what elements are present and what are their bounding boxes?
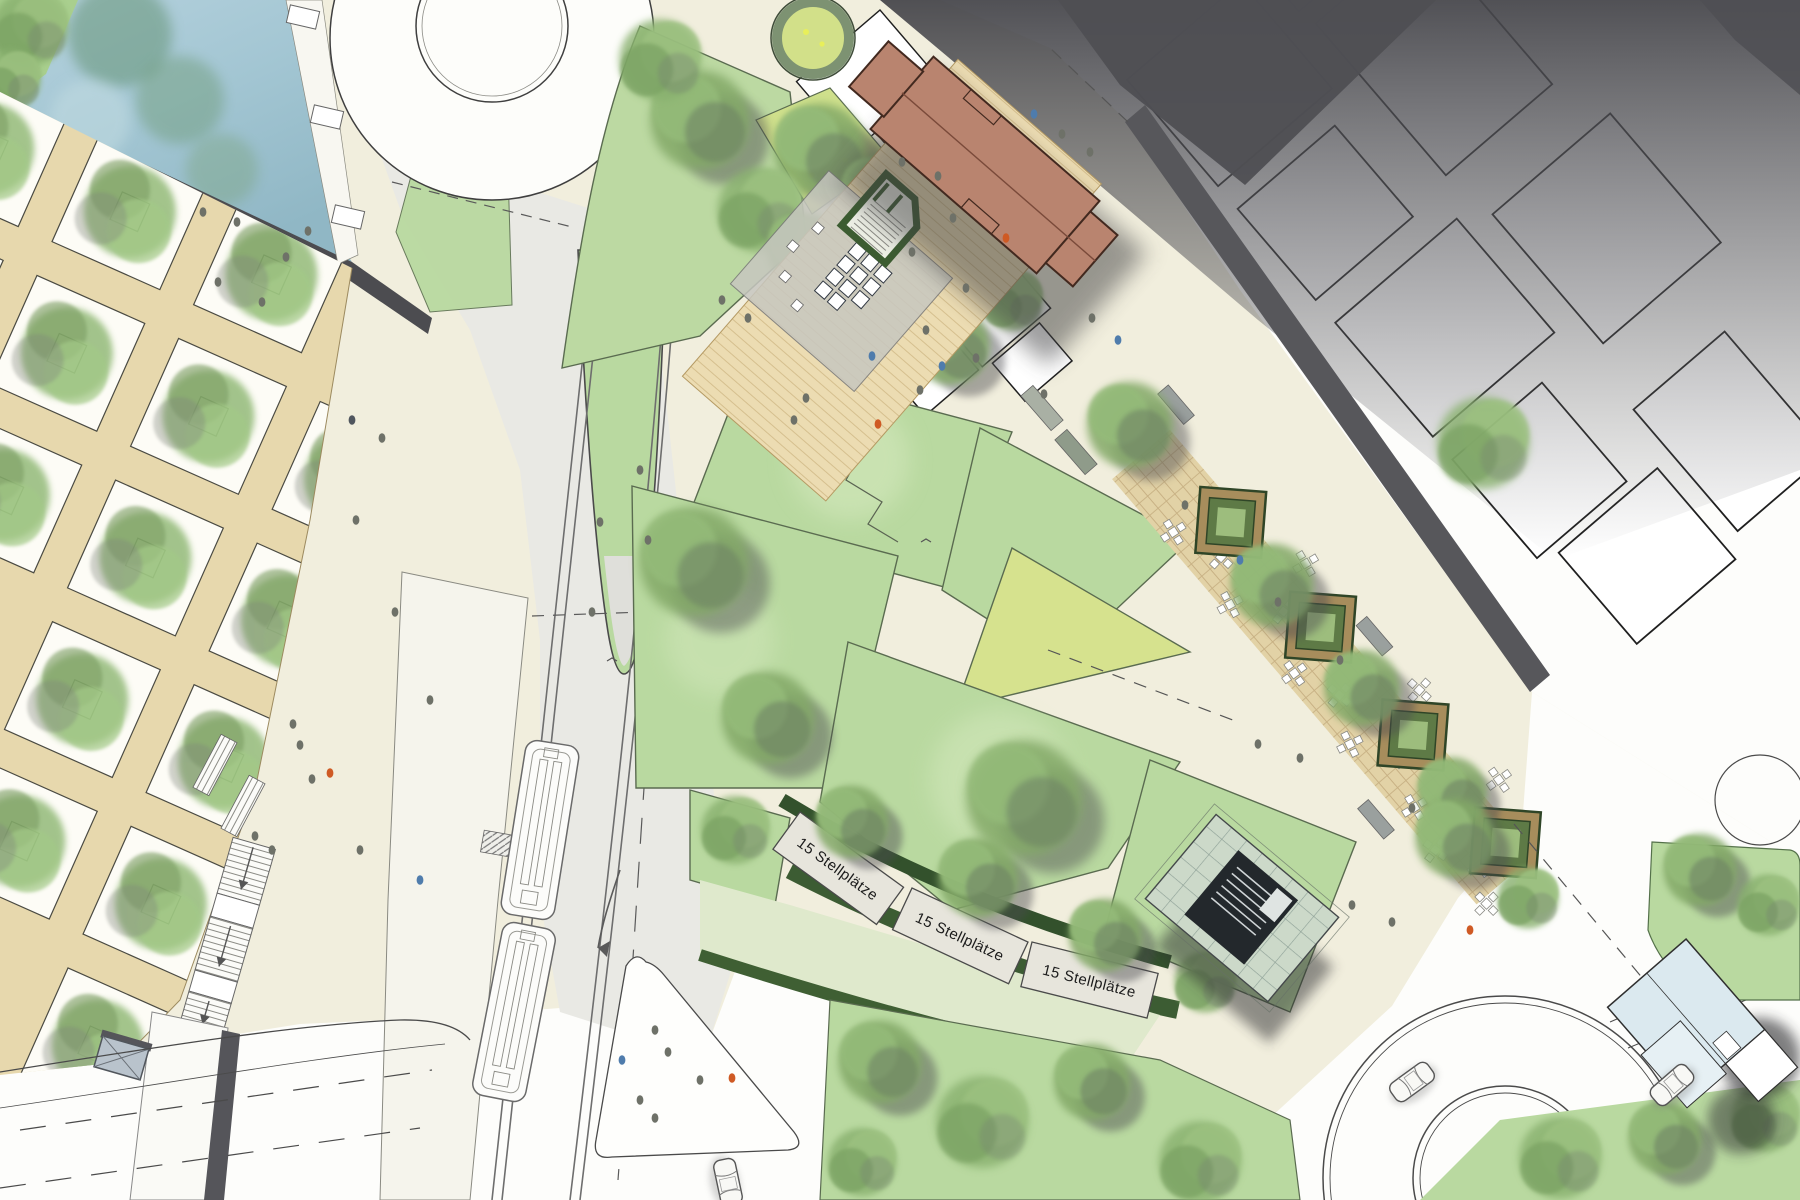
site-plan-page: 15 Stellplätze 15 Stellplätze 15 Stellpl… — [0, 0, 1800, 1200]
courtyard-tree — [1437, 397, 1529, 489]
ring-planter — [771, 0, 855, 80]
site-plan-svg: 15 Stellplätze 15 Stellplätze 15 Stellpl… — [0, 0, 1800, 1200]
